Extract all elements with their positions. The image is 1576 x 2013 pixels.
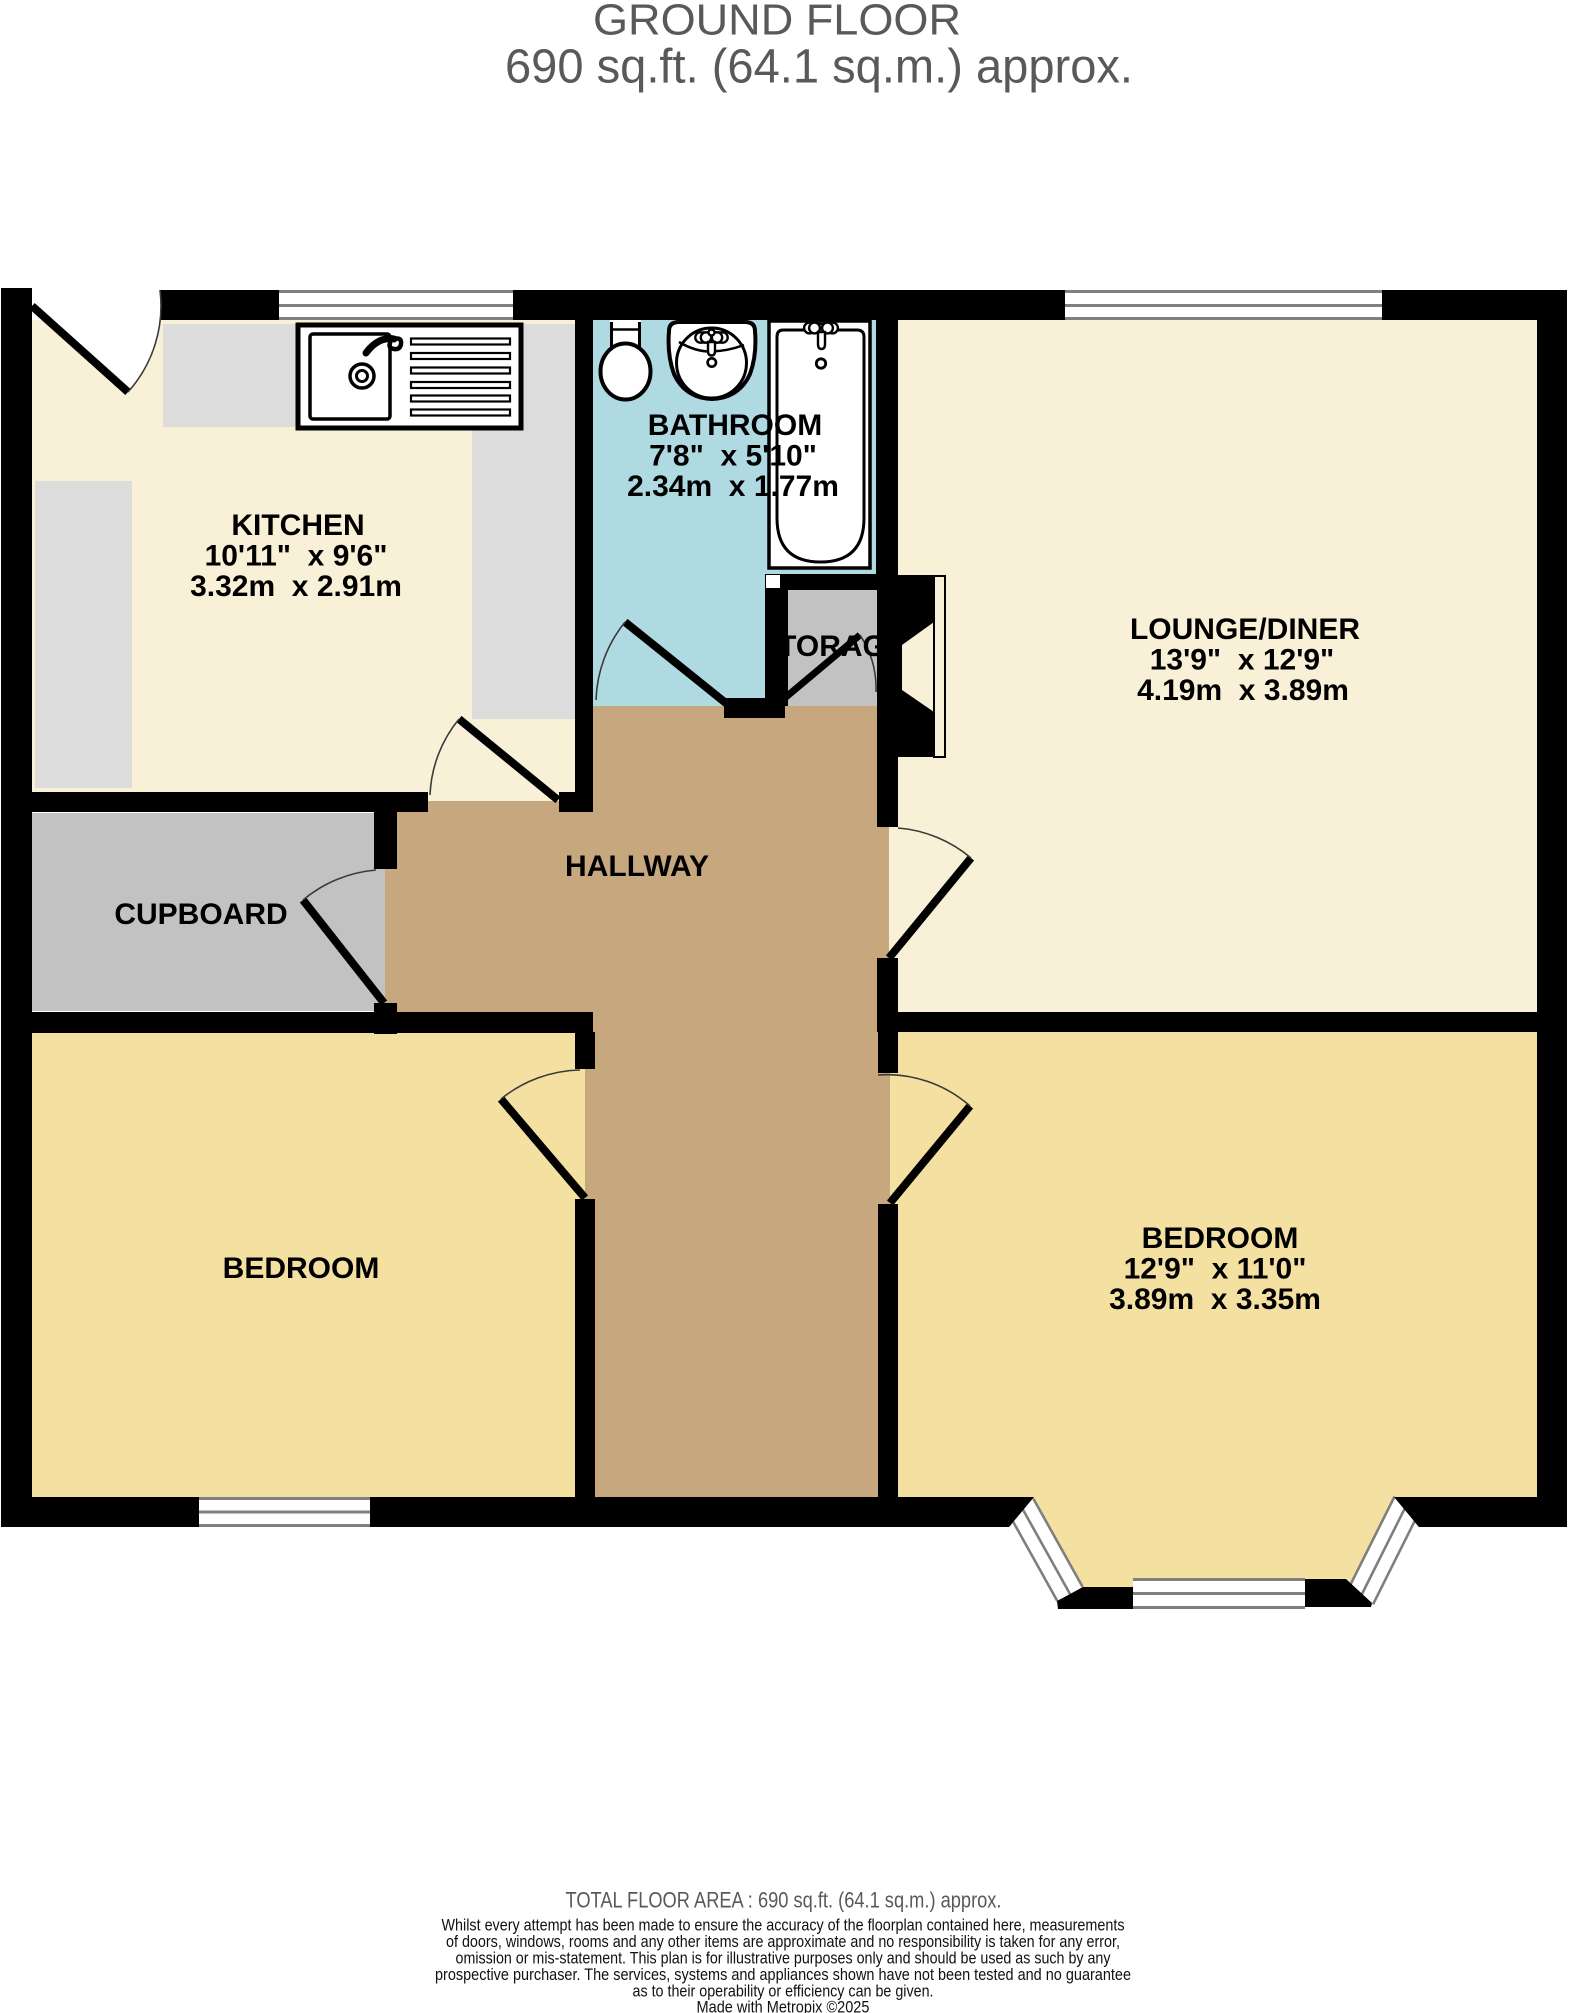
svg-text:4.19m x 3.89m: 4.19m x 3.89m	[1137, 674, 1349, 707]
svg-text:7'8" x 5'10": 7'8" x 5'10"	[649, 440, 817, 473]
svg-text:TOTAL FLOOR AREA : 690 sq.ft.: TOTAL FLOOR AREA : 690 sq.ft. (64.1 sq.m…	[566, 1888, 1002, 1913]
svg-text:690 sq.ft. (64.1 sq.m.) approx: 690 sq.ft. (64.1 sq.m.) approx.	[505, 40, 1133, 94]
svg-text:3.89m x 3.35m: 3.89m x 3.35m	[1109, 1283, 1321, 1316]
svg-text:BEDROOM: BEDROOM	[1142, 1222, 1299, 1255]
svg-text:HALLWAY: HALLWAY	[565, 850, 709, 883]
svg-text:2.34m x 1.77m: 2.34m x 1.77m	[627, 470, 839, 503]
svg-text:13'9" x 12'9": 13'9" x 12'9"	[1150, 644, 1335, 677]
svg-text:BATHROOM: BATHROOM	[648, 409, 822, 442]
svg-text:3.32m x 2.91m: 3.32m x 2.91m	[190, 570, 402, 603]
svg-text:BEDROOM: BEDROOM	[223, 1252, 380, 1285]
svg-text:Made with Metropix ©2025: Made with Metropix ©2025	[697, 1999, 870, 2013]
svg-text:12'9" x 11'0": 12'9" x 11'0"	[1124, 1253, 1307, 1286]
svg-text:CUPBOARD: CUPBOARD	[114, 898, 287, 931]
svg-text:10'11" x 9'6": 10'11" x 9'6"	[205, 540, 388, 573]
svg-text:GROUND FLOOR: GROUND FLOOR	[593, 0, 961, 44]
svg-text:KITCHEN: KITCHEN	[231, 509, 364, 542]
svg-text:LOUNGE/DINER: LOUNGE/DINER	[1130, 613, 1360, 646]
